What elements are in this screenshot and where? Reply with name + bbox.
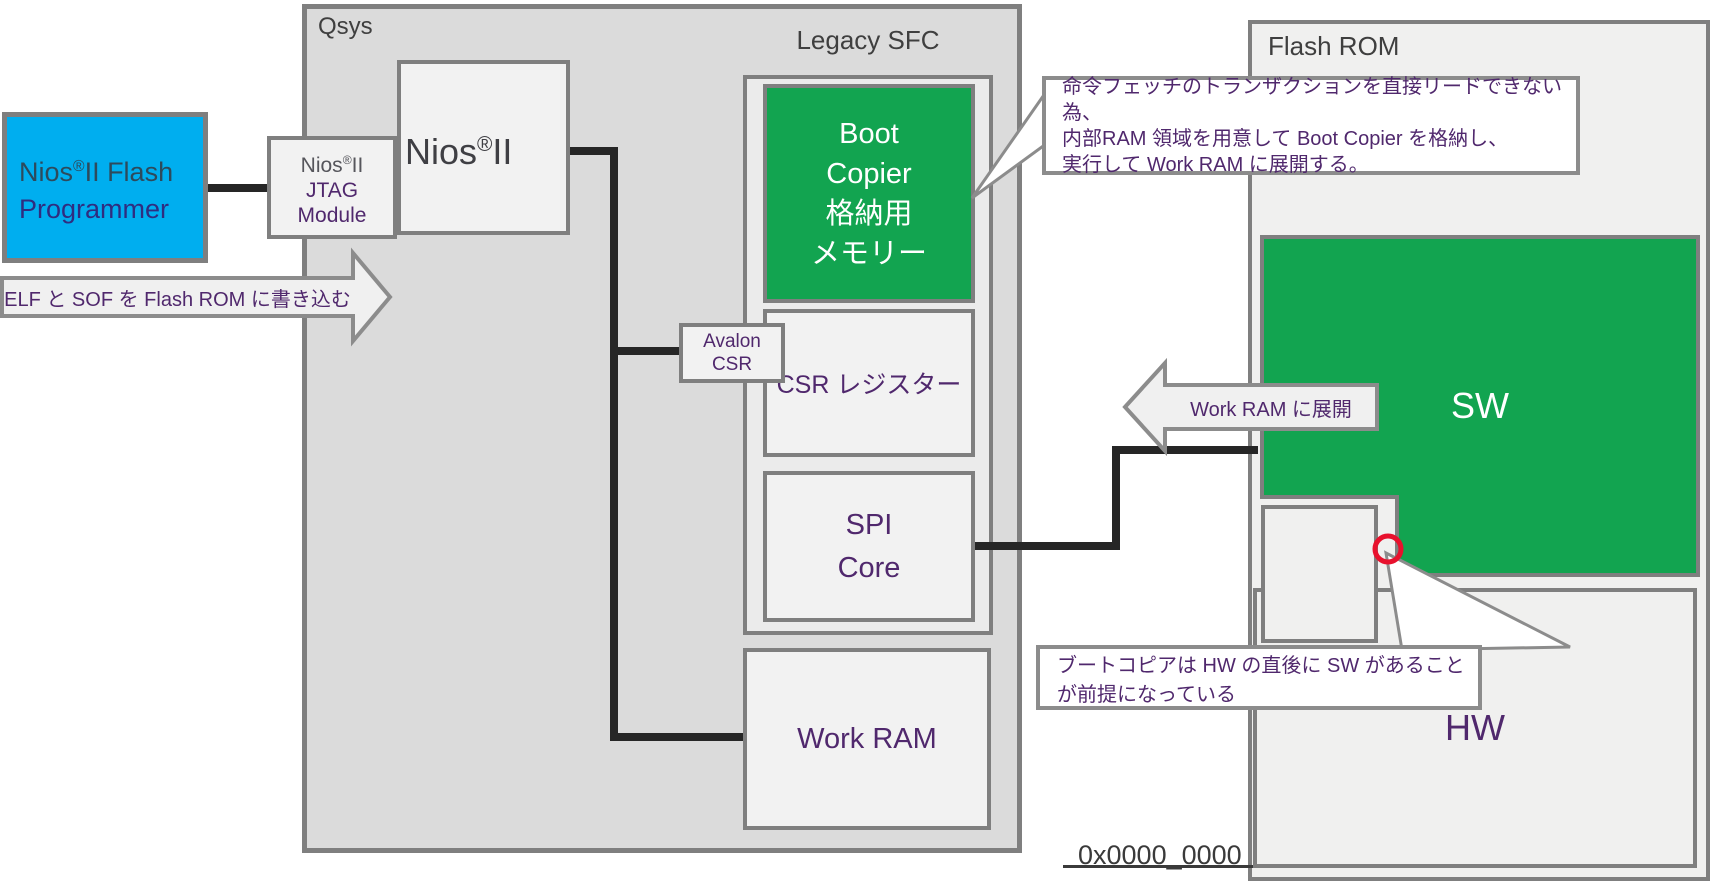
- marker-layer: [0, 0, 1715, 889]
- boundary-marker-circle: [1375, 536, 1401, 562]
- diagram-canvas: Qsys Flash ROM Legacy SFC Nios®II Flash …: [0, 0, 1715, 889]
